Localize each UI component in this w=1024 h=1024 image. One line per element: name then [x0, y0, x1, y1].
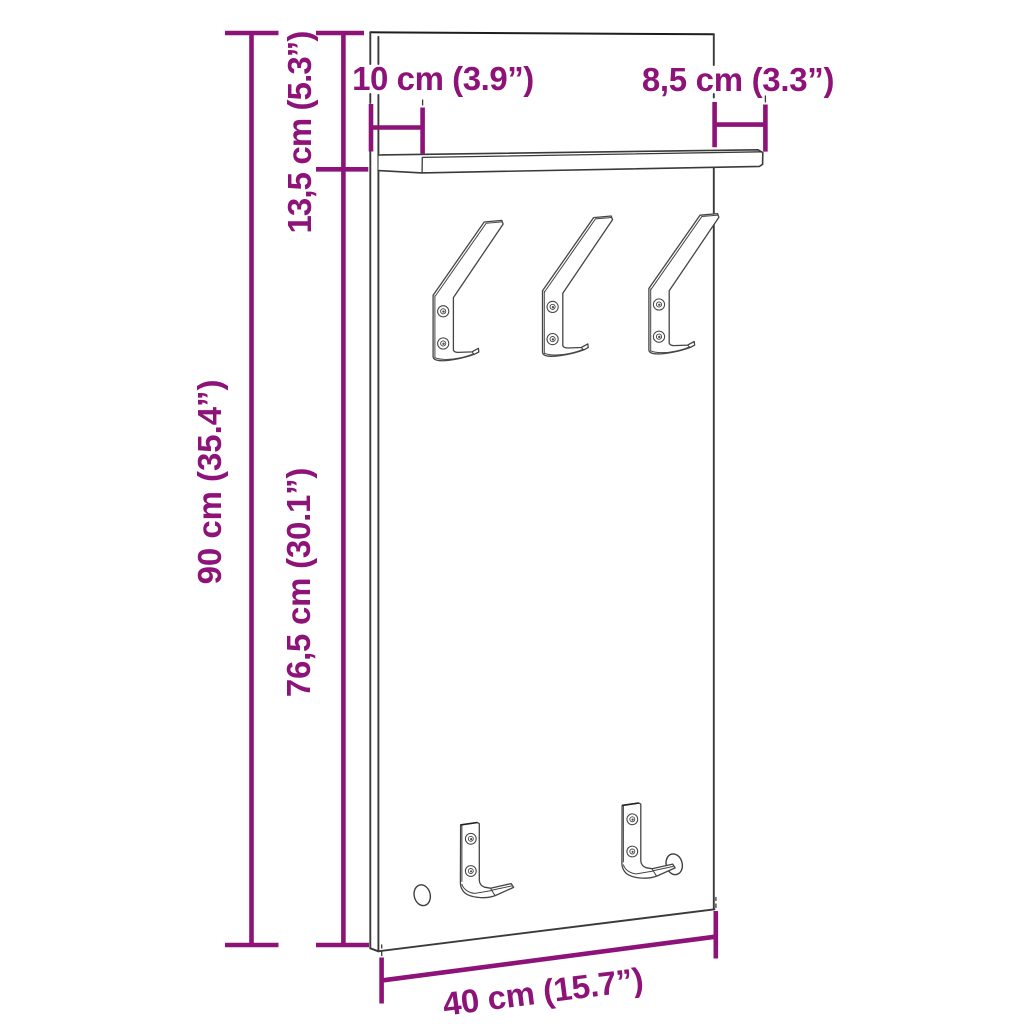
svg-text:13,5 cm (5.3”): 13,5 cm (5.3”) — [281, 31, 318, 233]
svg-text:76,5 cm (30.1”): 76,5 cm (30.1”) — [280, 468, 317, 697]
svg-text:90 cm (35.4”): 90 cm (35.4”) — [191, 380, 228, 585]
svg-text:10 cm (3.9”): 10 cm (3.9”) — [352, 60, 534, 97]
svg-text:8,5 cm (3.3”): 8,5 cm (3.3”) — [642, 61, 834, 98]
